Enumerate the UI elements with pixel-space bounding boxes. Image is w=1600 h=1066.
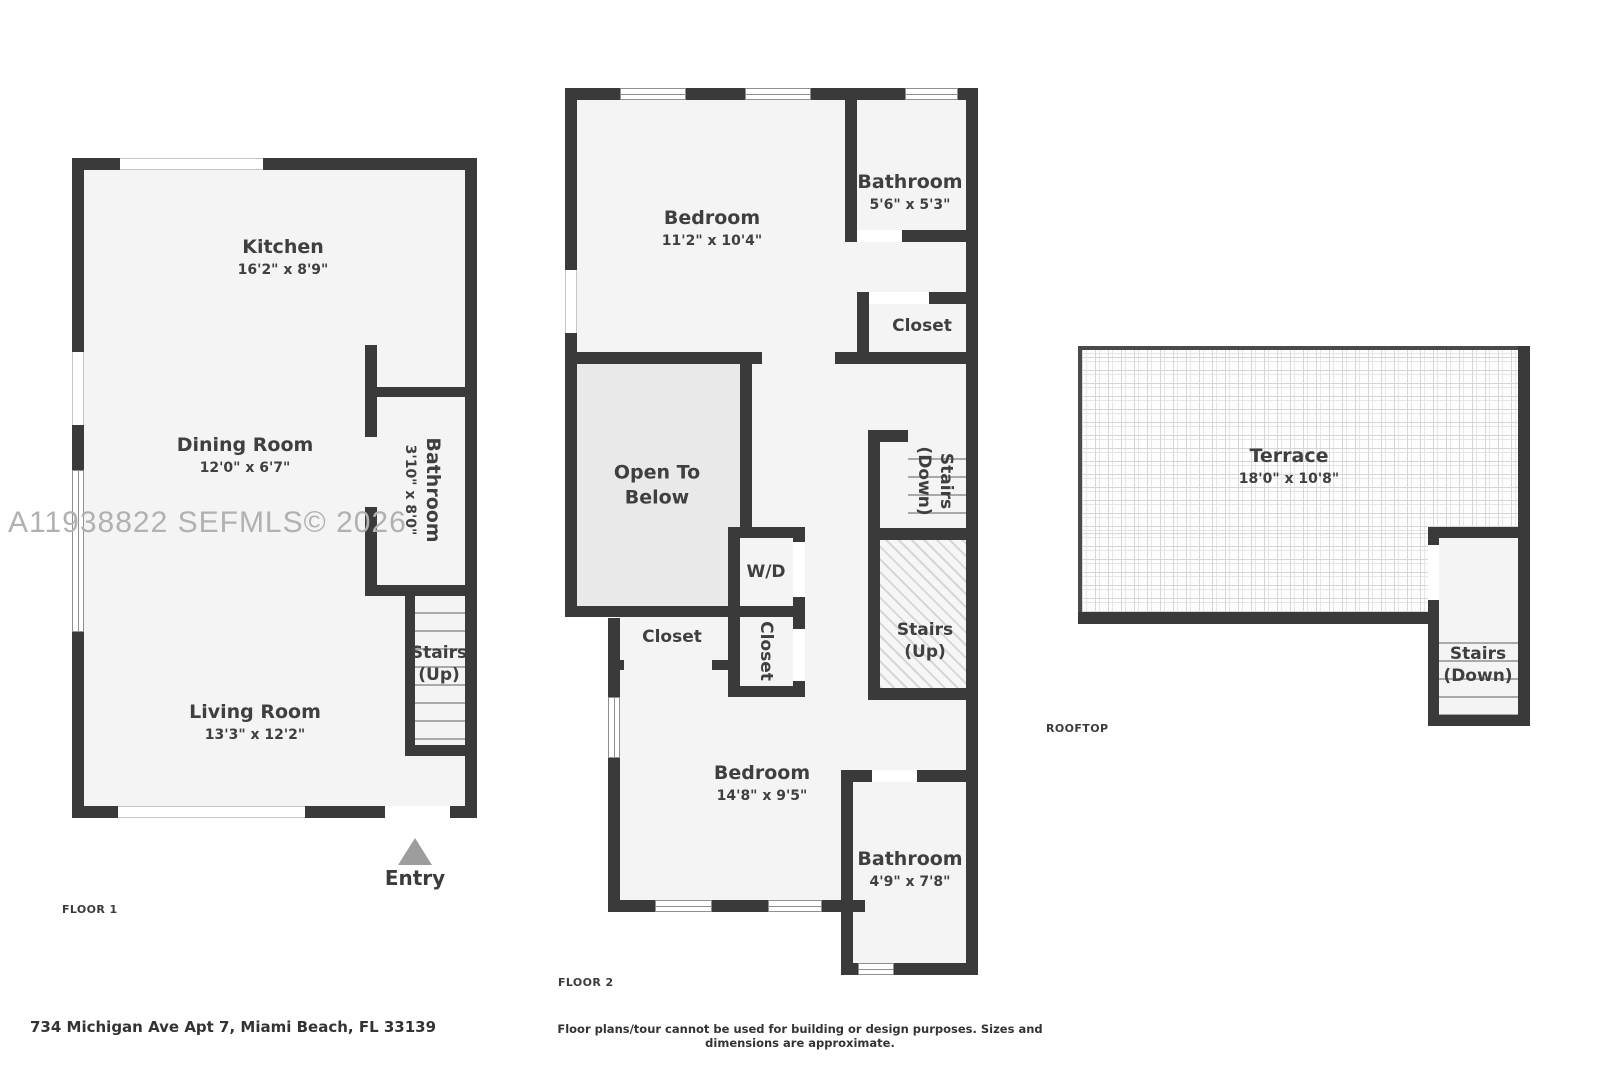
wall [608, 618, 620, 912]
floor2-closet-right-label: Closet [892, 315, 952, 337]
wall [72, 170, 84, 352]
rooftop-terrace-label: Terrace 18'0" x 10'8" [1239, 444, 1339, 488]
entry-arrow-icon [398, 838, 432, 865]
room-dims: 18'0" x 10'8" [1239, 470, 1339, 488]
stairs-landing [1439, 538, 1518, 626]
room-name: Living Room [189, 700, 321, 725]
window [118, 806, 305, 818]
floor1-entry-label: Entry [385, 866, 445, 890]
wall [868, 540, 880, 688]
floor-plan-canvas: Kitchen 16'2" x 8'9" Dining Room 12'0" x… [0, 0, 1600, 1066]
wall [728, 617, 740, 697]
door-opening [793, 629, 805, 681]
floor2-wd-label: W/D [746, 561, 785, 583]
terrace-tiles [1082, 527, 1428, 612]
room-name: Dining Room [177, 433, 314, 458]
wall [450, 806, 477, 818]
window [768, 900, 822, 912]
wall [72, 632, 84, 806]
wall [1428, 527, 1529, 538]
floor1-living-label: Living Room 13'3" x 12'2" [189, 700, 321, 744]
room-dims: 14'8" x 9'5" [714, 787, 810, 805]
wall [1078, 612, 1428, 624]
stairs-hatch [880, 540, 966, 688]
floor2-open-to-below-label: Open To Below [614, 460, 700, 509]
room-name: Bathroom [857, 170, 962, 195]
wall [712, 900, 768, 912]
parapet [1078, 346, 1082, 612]
room-name: Bathroom [420, 437, 445, 542]
room-dims: 4'9" x 7'8" [857, 873, 962, 891]
floor2-bathroom-top-label: Bathroom 5'6" x 5'3" [857, 170, 962, 214]
wall [365, 345, 377, 389]
wall [365, 397, 377, 437]
wall [365, 585, 477, 596]
window [120, 158, 263, 170]
door-opening [872, 770, 917, 782]
window [745, 88, 811, 100]
room-name: Bedroom [714, 761, 810, 786]
wall [263, 158, 477, 170]
room-name: Bedroom [662, 206, 762, 231]
window [858, 963, 894, 975]
wall [405, 745, 477, 756]
window [565, 270, 577, 333]
room-dims: 12'0" x 6'7" [177, 459, 314, 477]
wall [72, 425, 84, 470]
floor2-stairs-down-label: Stairs (Down) [913, 446, 957, 515]
floor2-stairs-up-label: Stairs (Up) [897, 619, 953, 663]
room-dims: 3'10" x 8'0" [401, 437, 419, 542]
floor1-dining-label: Dining Room 12'0" x 6'7" [177, 433, 314, 477]
wall [305, 806, 385, 818]
room-name: Bathroom [857, 847, 962, 872]
door-opening [1428, 545, 1439, 600]
floor2-bathroom-bottom-label: Bathroom 4'9" x 7'8" [857, 847, 962, 891]
window [72, 352, 84, 425]
door-opening [857, 230, 902, 242]
room-dims: 11'2" x 10'4" [662, 232, 762, 250]
wall [740, 352, 752, 538]
rooftop-stairs-down-label: Stairs (Down) [1443, 643, 1512, 687]
property-address: 734 Michigan Ave Apt 7, Miami Beach, FL … [30, 1018, 436, 1036]
wall [868, 430, 880, 540]
room-name: Terrace [1239, 444, 1339, 469]
door-opening [793, 542, 805, 597]
wall [465, 170, 477, 806]
rooftop-tag: ROOFTOP [1046, 722, 1108, 735]
wall [565, 352, 762, 364]
wall [72, 158, 120, 170]
wall [608, 900, 655, 912]
floor2-bedroom-bottom-label: Bedroom 14'8" x 9'5" [714, 761, 810, 805]
wall [845, 100, 857, 230]
wall [72, 806, 118, 818]
window [905, 88, 958, 100]
wall [728, 686, 805, 697]
room-dims: 13'3" x 12'2" [189, 726, 321, 744]
wall [712, 660, 728, 670]
floor2-bedroom-top-label: Bedroom 11'2" x 10'4" [662, 206, 762, 250]
wall [365, 387, 477, 397]
wall [1428, 715, 1529, 726]
floor1-stairs-up-label: Stairs (Up) [411, 642, 467, 686]
room-name: Kitchen [238, 235, 329, 260]
disclaimer-text: Floor plans/tour cannot be used for buil… [540, 1022, 1060, 1050]
floor2-closet-mid-label: Closet [755, 621, 777, 681]
wall [868, 688, 978, 700]
room-dims: 16'2" x 8'9" [238, 261, 329, 279]
floor1-bathroom-label: Bathroom 3'10" x 8'0" [401, 437, 445, 542]
wall [565, 606, 805, 617]
parapet [1078, 346, 1530, 350]
wall [835, 352, 978, 364]
terrace-tiles [1082, 350, 1518, 527]
wall [565, 100, 577, 270]
floor1-tag: FLOOR 1 [62, 903, 118, 916]
floor2-tag: FLOOR 2 [558, 976, 614, 989]
wall [565, 333, 577, 612]
wall [365, 507, 377, 585]
room-dims: 5'6" x 5'3" [857, 196, 962, 214]
window [608, 697, 620, 758]
window [620, 88, 686, 100]
window [655, 900, 712, 912]
wall [841, 770, 853, 975]
door-opening [869, 292, 929, 304]
wall [880, 528, 978, 540]
floor2-closet-left-label: Closet [642, 626, 702, 648]
floor1-kitchen-label: Kitchen 16'2" x 8'9" [238, 235, 329, 279]
window [72, 470, 84, 632]
wall [728, 527, 740, 617]
